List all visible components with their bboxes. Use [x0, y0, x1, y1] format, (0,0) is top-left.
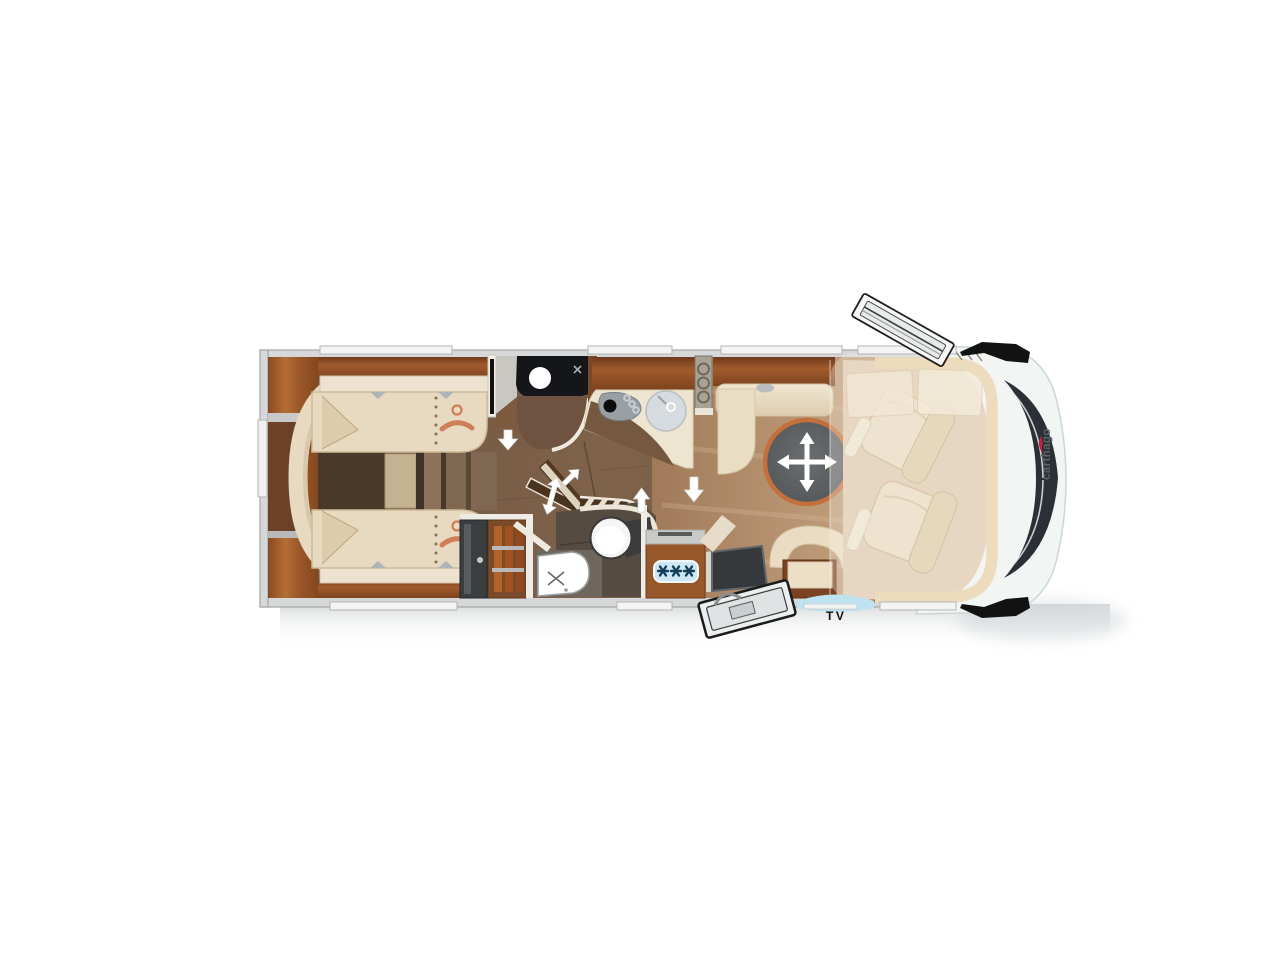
- svg-text:carthago: carthago: [1041, 428, 1053, 480]
- svg-text:TV: TV: [826, 609, 846, 623]
